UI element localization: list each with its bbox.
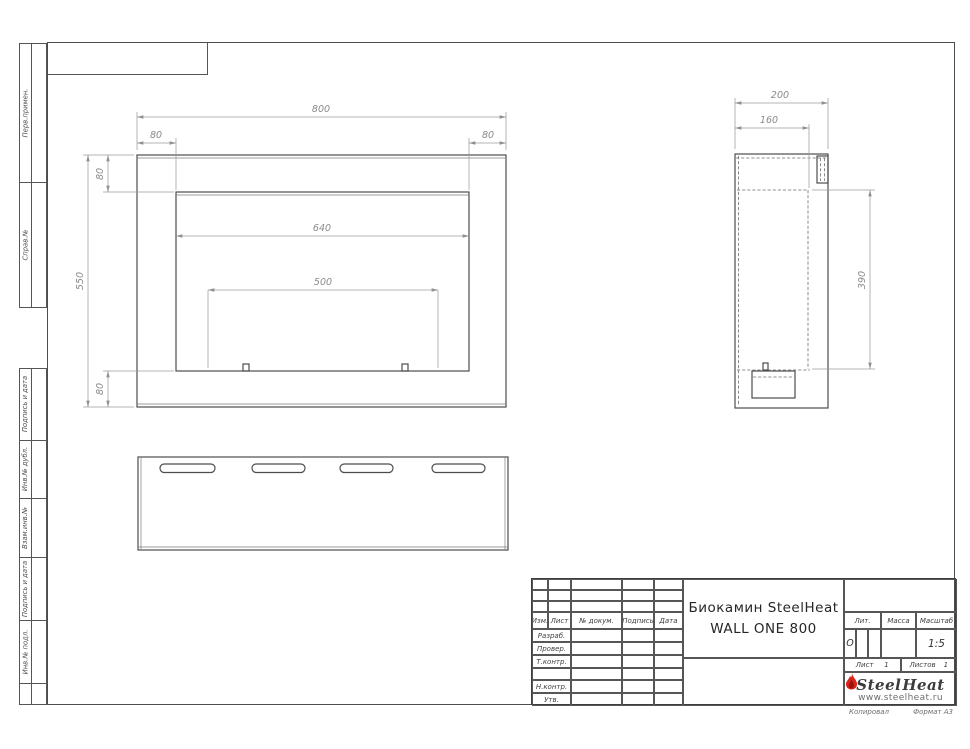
side-view-dimensions: 200 160 390 bbox=[735, 90, 875, 369]
col-izm: Изм. bbox=[532, 612, 548, 629]
title-block: Изм. Лист № докум. Подпись Дата Разраб. … bbox=[531, 578, 956, 705]
dim-front-top-offset: 80 bbox=[95, 168, 106, 180]
vent-slot bbox=[160, 464, 215, 473]
logo-cell: Steel Heat www.steelheat.ru bbox=[844, 672, 957, 706]
vent-slot bbox=[340, 464, 393, 473]
document-title-line2: WALL ONE 800 bbox=[710, 619, 817, 639]
col-podpis: Подпись bbox=[622, 612, 654, 629]
sheets-total: 1 bbox=[944, 661, 948, 669]
role-utv: Утв. bbox=[532, 693, 571, 706]
burner-box bbox=[752, 371, 795, 398]
role-razrab: Разраб. bbox=[532, 629, 571, 642]
col-data: Дата bbox=[654, 612, 683, 629]
side-view bbox=[735, 154, 828, 408]
burner-tab-right bbox=[402, 364, 408, 371]
dim-side-opening-height: 390 bbox=[857, 271, 868, 289]
lit-massa-masshtab-header: Лит. Масса Масштаб bbox=[844, 612, 957, 629]
lit-massa-masshtab-values: О 1:5 bbox=[844, 629, 957, 658]
flame-icon bbox=[845, 673, 858, 690]
scale-label: Масштаб bbox=[916, 612, 957, 629]
lit-label: Лит. bbox=[844, 612, 881, 629]
front-view-dimensions: 800 80 80 80 550 80 640 500 bbox=[75, 104, 506, 407]
role-empty bbox=[532, 668, 571, 680]
sheets-label: Листов bbox=[909, 661, 935, 669]
scale-value: 1:5 bbox=[916, 629, 957, 658]
mount-bracket bbox=[817, 156, 828, 183]
dim-front-bottom-offset: 80 bbox=[95, 383, 106, 395]
burner-tab-left bbox=[243, 364, 249, 371]
logo-steel-text: Steel bbox=[856, 676, 901, 694]
dim-front-margin-left: 80 bbox=[150, 130, 162, 141]
role-nkontr: Н.контр. bbox=[532, 680, 571, 693]
steelheat-logo: Steel Heat bbox=[856, 676, 944, 694]
copied-by-label: Копировал bbox=[838, 708, 900, 716]
revision-header: Изм. Лист № докум. Подпись Дата bbox=[532, 612, 683, 629]
col-dokum: № докум. bbox=[571, 612, 622, 629]
format-label: Формат А3 bbox=[903, 708, 963, 716]
dim-front-height: 550 bbox=[75, 272, 86, 290]
dim-side-inner-depth: 160 bbox=[760, 115, 778, 126]
material-cell bbox=[683, 658, 844, 706]
right-top-empty-cell bbox=[844, 579, 957, 612]
sheet-count-row: Лист 1 Листов 1 bbox=[844, 658, 957, 672]
logo-url: www.steelheat.ru bbox=[858, 693, 943, 703]
lit-value: О bbox=[844, 629, 856, 658]
dim-front-opening-width: 640 bbox=[313, 223, 331, 234]
role-prover: Провер. bbox=[532, 642, 571, 655]
logo-heat-text: Heat bbox=[902, 676, 944, 694]
sheet-number: 1 bbox=[884, 661, 888, 669]
dim-front-burner-width: 500 bbox=[314, 277, 332, 288]
mass-value bbox=[881, 629, 916, 658]
role-rows: Разраб. Провер. Т.контр. Н.контр. Утв. bbox=[532, 629, 683, 706]
document-title-line1: Биокамин SteelHeat bbox=[688, 598, 838, 618]
dim-front-width: 800 bbox=[312, 104, 330, 115]
drawing-sheet: Перв.примен. Справ.№ Подпись и дата Инв.… bbox=[0, 0, 970, 749]
role-tkontr: Т.контр. bbox=[532, 655, 571, 668]
dim-front-margin-right: 80 bbox=[482, 130, 494, 141]
vent-slot bbox=[432, 464, 485, 473]
sheet-label: Лист bbox=[856, 661, 874, 669]
burner-tab-side bbox=[763, 363, 768, 370]
document-title-cell: Биокамин SteelHeat WALL ONE 800 bbox=[683, 579, 844, 658]
bottom-view bbox=[138, 457, 508, 550]
vent-slot bbox=[252, 464, 305, 473]
revision-rows bbox=[532, 579, 683, 612]
dim-side-depth: 200 bbox=[771, 90, 789, 101]
mass-label: Масса bbox=[881, 612, 916, 629]
col-list: Лист bbox=[548, 612, 571, 629]
